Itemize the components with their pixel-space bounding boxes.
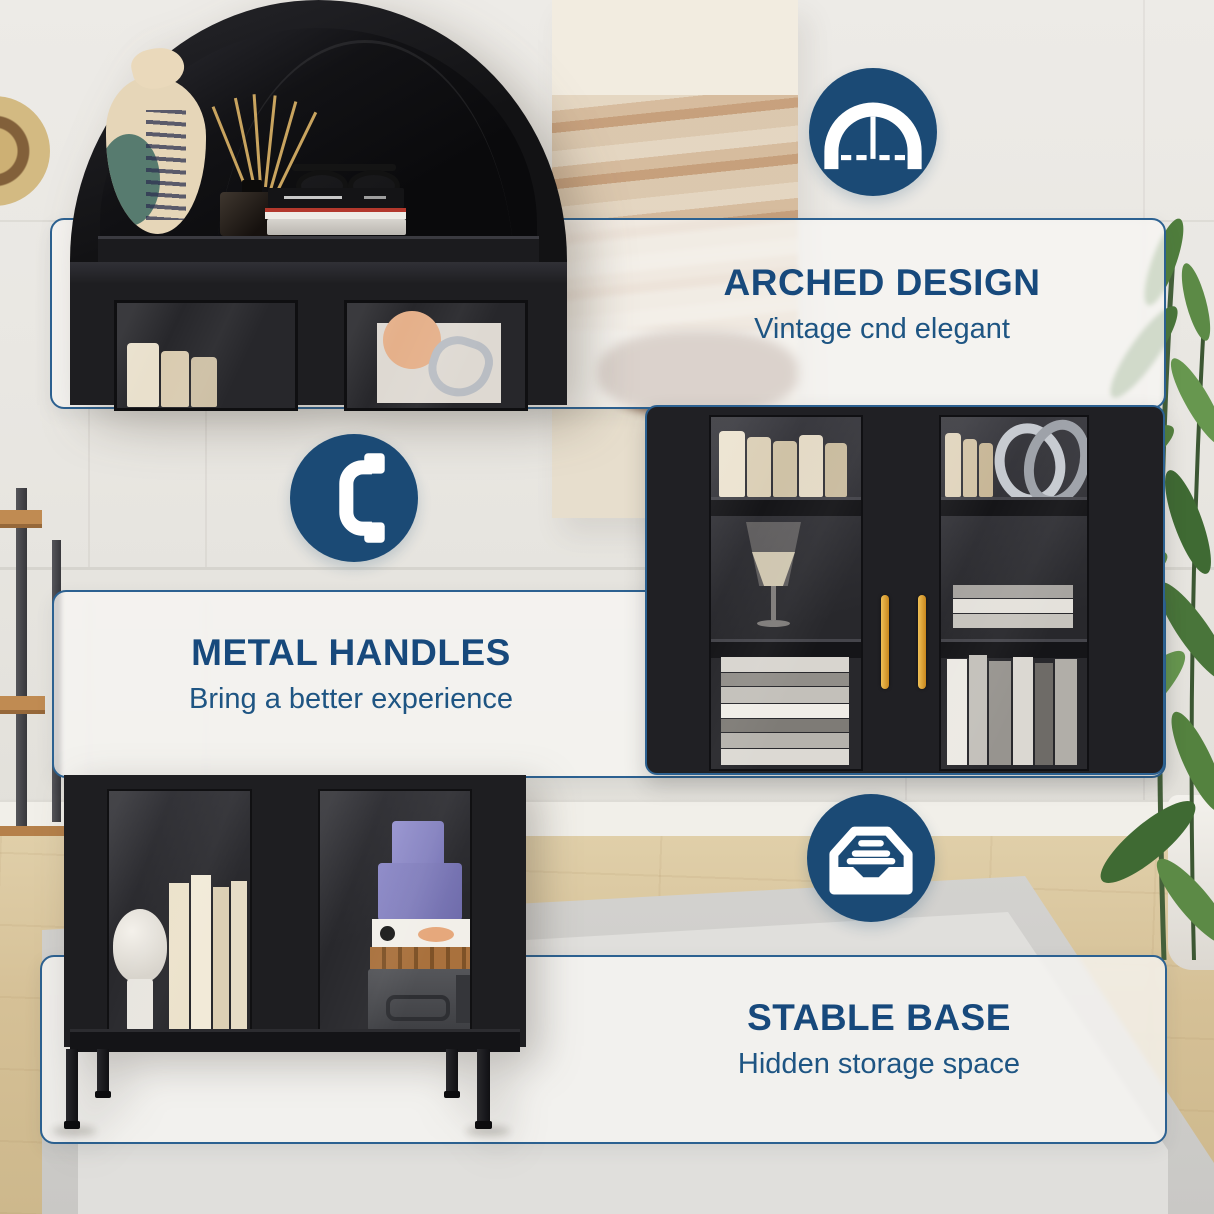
- book: [268, 188, 404, 208]
- photo-middle-handles: [645, 405, 1165, 775]
- glass-reflection: [320, 791, 470, 1031]
- handle-icon-badge: [290, 434, 418, 562]
- glass-door: [114, 300, 298, 411]
- gold-handle: [918, 595, 926, 689]
- glass-door: [344, 300, 528, 411]
- leg-foot: [95, 1091, 111, 1098]
- glass-door-right: [318, 789, 472, 1033]
- cabinet-leg: [66, 1049, 78, 1121]
- feature-text: ARCHED DESIGN Vintage cnd elegant: [637, 262, 1127, 347]
- glass-reflection: [109, 791, 250, 1031]
- glass-door-left: [709, 415, 863, 771]
- glass-door-right: [939, 415, 1089, 771]
- drawer-icon-badge: [807, 794, 935, 922]
- feature-subtitle: Hidden storage space: [634, 1046, 1124, 1082]
- art-texture: [552, 0, 798, 110]
- glass-door-left: [107, 789, 252, 1033]
- arch-icon-badge: [809, 68, 937, 196]
- leg-foot: [444, 1091, 460, 1098]
- leg-foot: [64, 1121, 80, 1129]
- product-feature-image: ARCHED DESIGN Vintage cnd elegant METAL …: [0, 0, 1214, 1214]
- glass-reflection: [347, 303, 525, 408]
- book: [265, 208, 406, 219]
- photo-bottom-base: [64, 775, 526, 1137]
- feature-subtitle: Vintage cnd elegant: [637, 311, 1127, 347]
- glass-reflection: [711, 417, 861, 769]
- arch-icon: [809, 68, 937, 196]
- bag-vase-print: [146, 110, 186, 220]
- cabinet-top-rail: [70, 262, 567, 284]
- feature-title: STABLE BASE: [634, 997, 1124, 1039]
- feature-text: STABLE BASE Hidden storage space: [634, 997, 1124, 1082]
- feature-title: ARCHED DESIGN: [637, 262, 1127, 304]
- feature-subtitle: Bring a better experience: [106, 681, 596, 717]
- book: [267, 219, 406, 235]
- gold-handle: [881, 595, 889, 689]
- feature-title: METAL HANDLES: [106, 632, 596, 674]
- glass-reflection: [941, 417, 1087, 769]
- feature-text: METAL HANDLES Bring a better experience: [106, 632, 596, 717]
- ladder-shelf-plank: [0, 510, 42, 528]
- leg-foot: [475, 1121, 492, 1129]
- photo-arched-top: [70, 0, 567, 405]
- ladder-shelf-plank: [0, 696, 45, 714]
- cabinet-leg: [97, 1049, 109, 1091]
- cabinet-leg: [477, 1049, 490, 1121]
- drawer-icon: [807, 794, 935, 922]
- glass-reflection: [117, 303, 295, 408]
- cabinet-leg: [446, 1049, 458, 1091]
- handle-icon: [290, 434, 418, 562]
